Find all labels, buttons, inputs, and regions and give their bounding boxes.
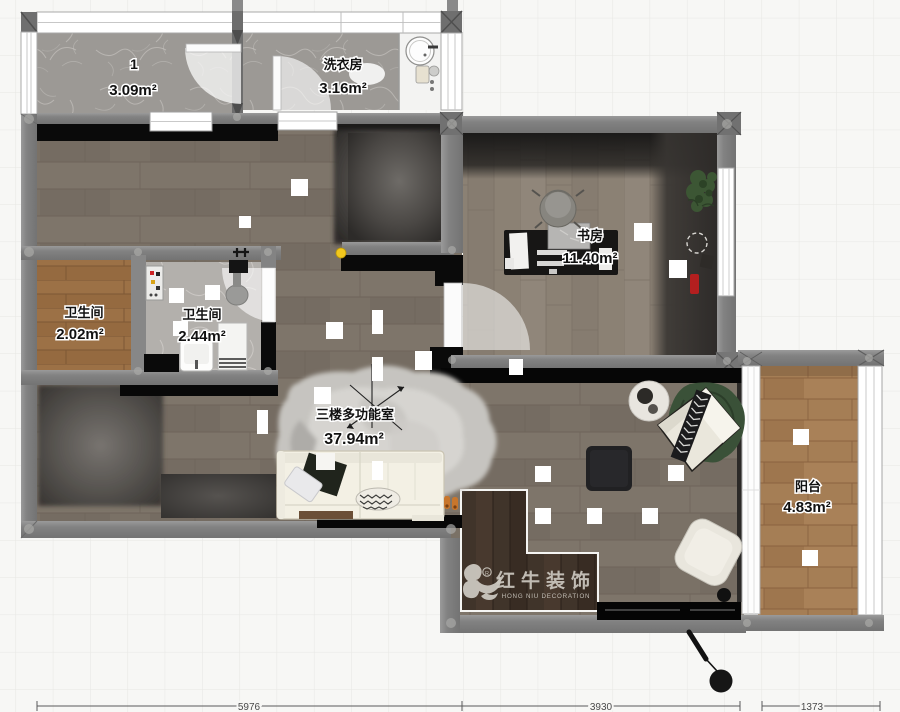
svg-text:37.94m²: 37.94m² [324,431,384,448]
svg-text:书房: 书房 [577,228,603,243]
svg-text:卫生间: 卫生间 [182,307,221,322]
svg-text:1: 1 [130,56,138,72]
svg-text:11.40m²: 11.40m² [562,250,617,267]
svg-text:2.02m²: 2.02m² [56,326,104,343]
svg-text:HONG NIU DECORATION: HONG NIU DECORATION [502,593,591,600]
svg-text:5976: 5976 [238,702,261,712]
svg-text:三楼多功能室: 三楼多功能室 [316,407,394,422]
svg-text:阳台: 阳台 [795,479,821,494]
svg-text:4.83m²: 4.83m² [783,499,831,516]
svg-text:洗衣房: 洗衣房 [323,57,362,72]
svg-text:卫生间: 卫生间 [64,305,103,320]
svg-text:2.44m²: 2.44m² [178,328,226,345]
svg-text:R: R [485,571,489,577]
svg-text:1373: 1373 [801,702,824,712]
svg-text:3.09m²: 3.09m² [109,82,157,99]
svg-text:3.16m²: 3.16m² [319,80,367,97]
svg-text:红牛装饰: 红牛装饰 [496,569,596,592]
svg-text:3930: 3930 [590,702,613,712]
